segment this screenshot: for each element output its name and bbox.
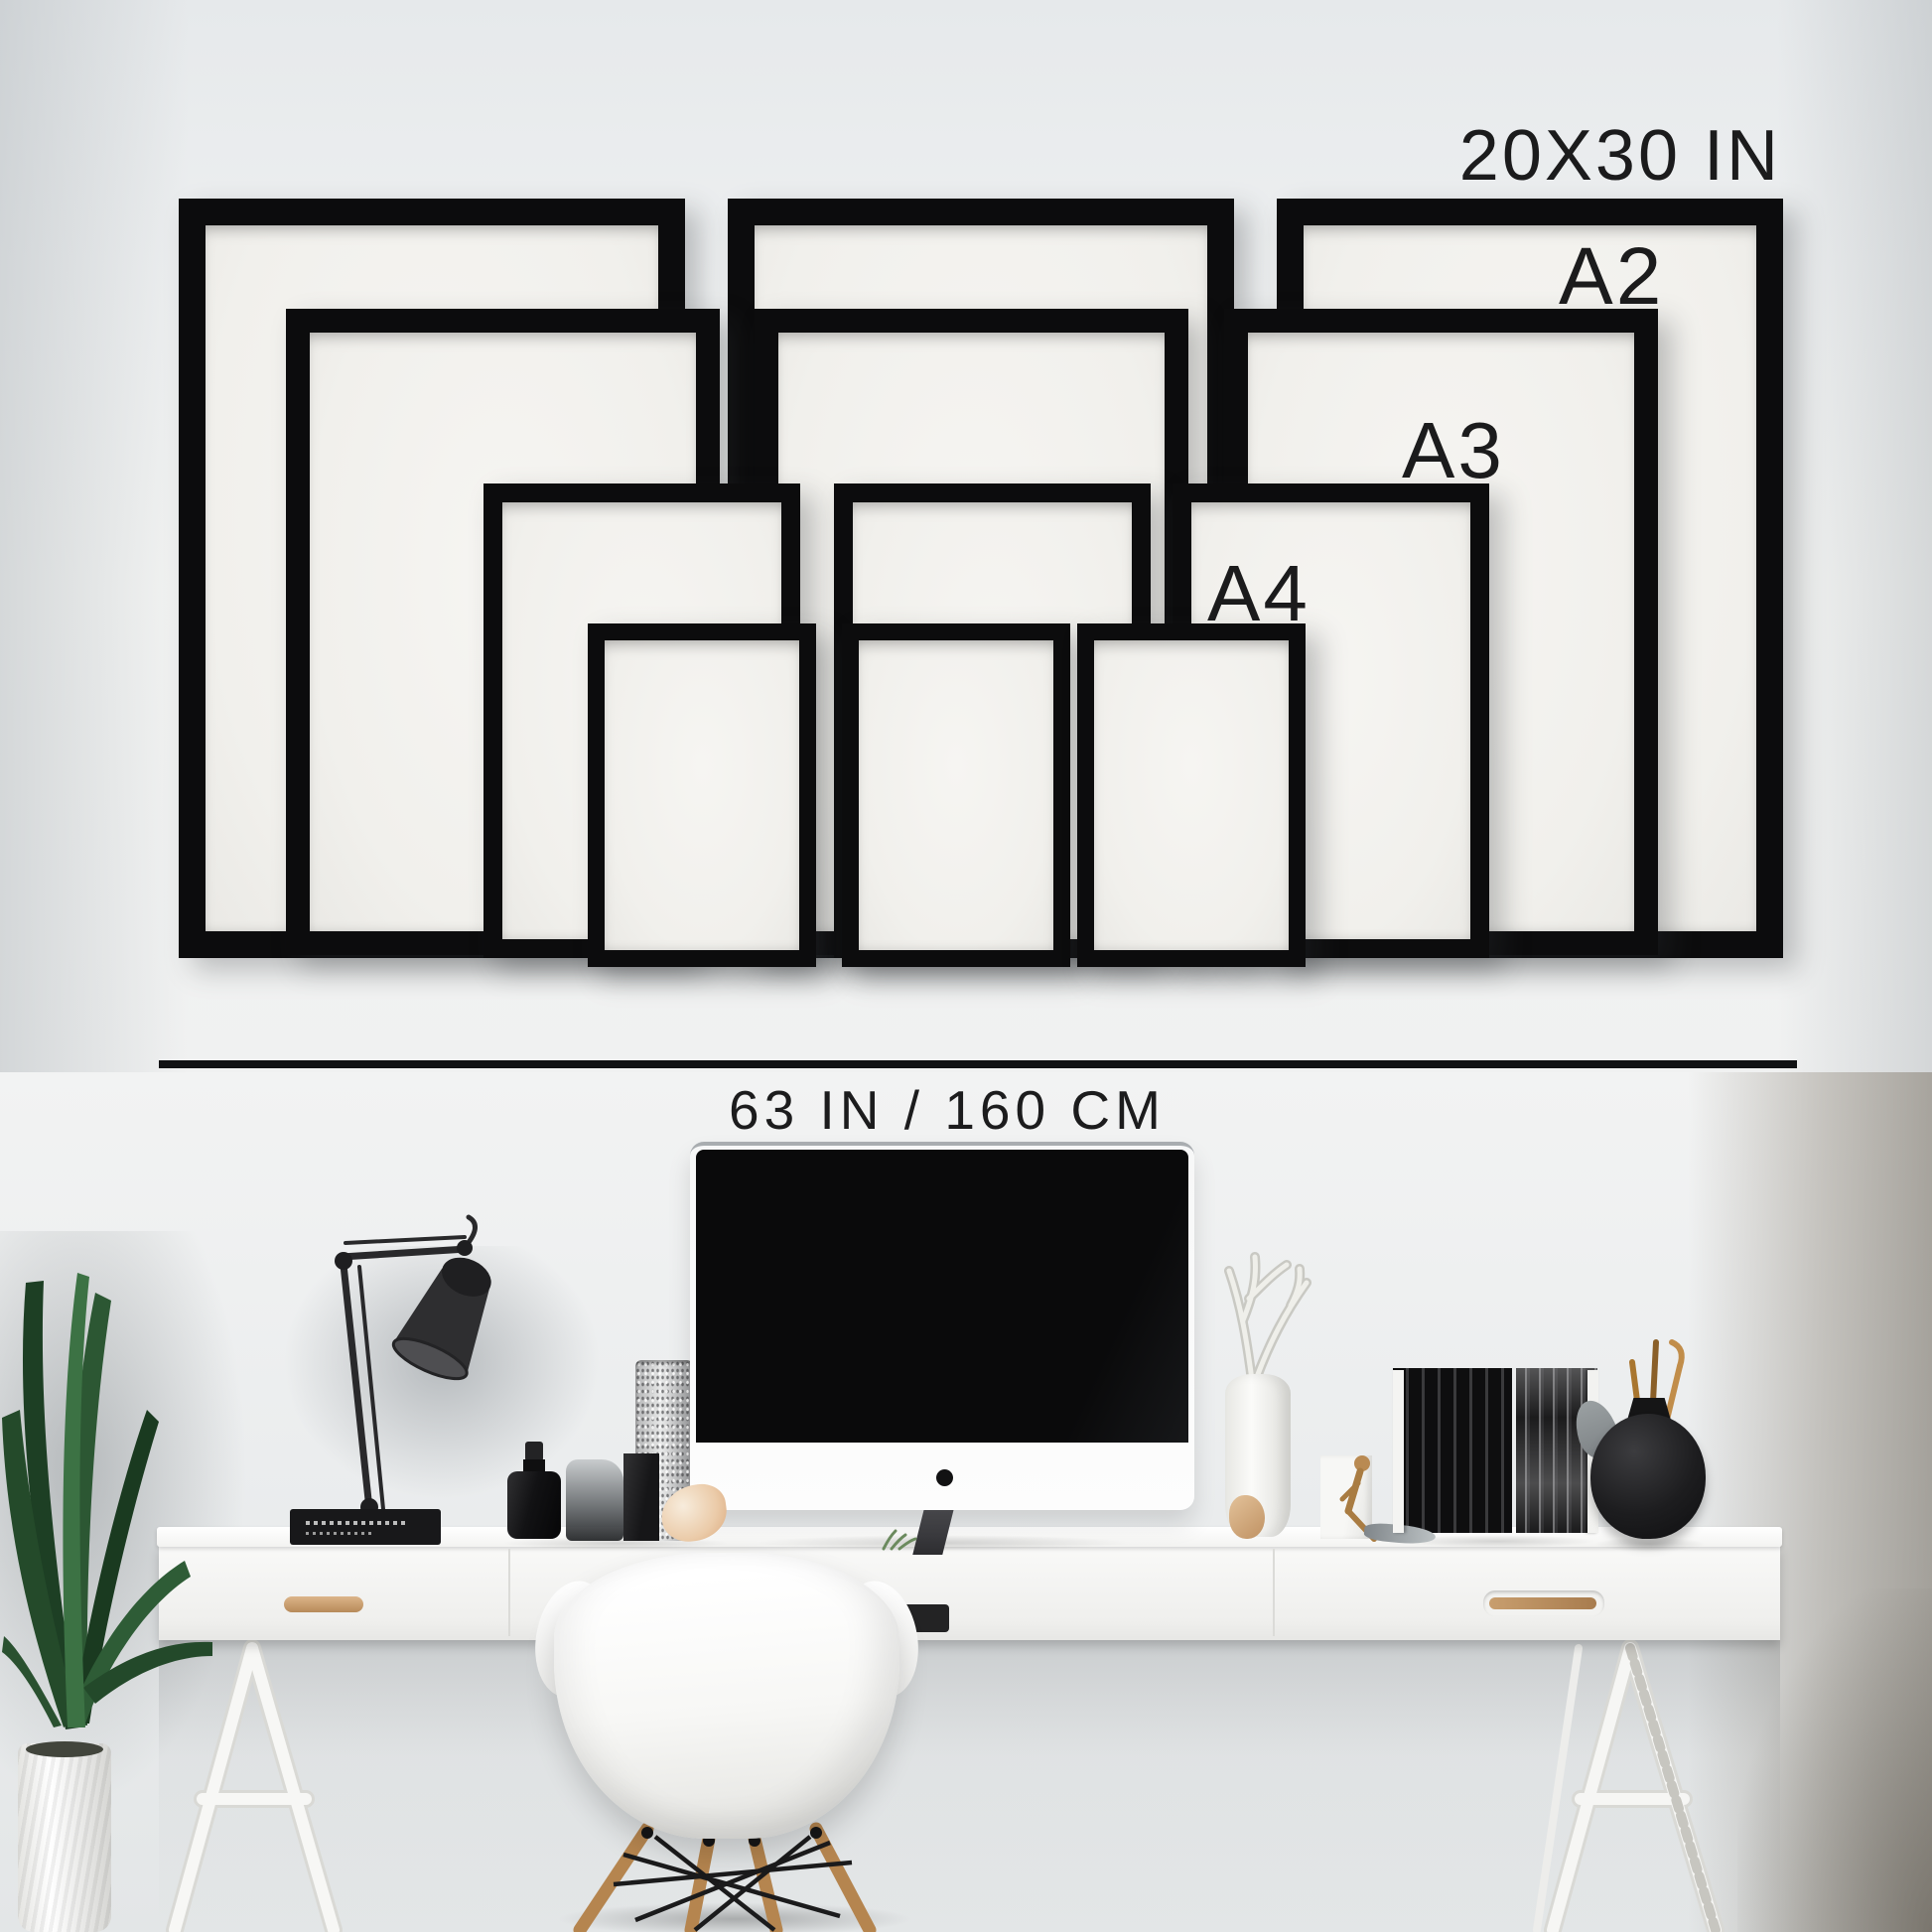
width-measure-line bbox=[159, 1060, 1797, 1068]
imac-screen bbox=[696, 1150, 1188, 1443]
label-size-a4: A4 bbox=[1207, 548, 1311, 639]
book-spine-text bbox=[306, 1521, 405, 1525]
flask-cap bbox=[525, 1442, 543, 1461]
lamp-base-books bbox=[290, 1509, 441, 1545]
lamp-wall-shadow bbox=[278, 1246, 606, 1504]
black-flask bbox=[507, 1471, 561, 1539]
frame-a4-right bbox=[1077, 623, 1306, 967]
apple-logo-icon bbox=[936, 1469, 953, 1486]
round-black-vase bbox=[1590, 1414, 1706, 1539]
bookend-left bbox=[1393, 1370, 1404, 1533]
drawer-handle-left bbox=[284, 1596, 363, 1612]
wall-right-shade bbox=[1777, 0, 1932, 1072]
room-scene: 20X30 IN A2 A3 A4 63 IN / 160 CM bbox=[0, 0, 1932, 1932]
vase-shadow bbox=[1594, 1537, 1706, 1552]
wall-left-shade bbox=[0, 0, 189, 1072]
wood-piece bbox=[1229, 1495, 1265, 1539]
drawer-seam-left bbox=[508, 1549, 510, 1636]
book-spine-text2 bbox=[306, 1532, 375, 1535]
frame-a4-left bbox=[588, 623, 816, 967]
pot-rim bbox=[26, 1741, 103, 1757]
black-book-row bbox=[1393, 1368, 1512, 1533]
width-measure-label: 63 IN / 160 CM bbox=[451, 1078, 1444, 1142]
frame-a4-middle bbox=[842, 623, 1070, 967]
glass-carafe bbox=[566, 1459, 623, 1541]
label-size-a3: A3 bbox=[1402, 405, 1505, 496]
chair-shadow bbox=[556, 1902, 913, 1932]
black-square-vase bbox=[623, 1453, 659, 1541]
label-size-a2: A2 bbox=[1559, 230, 1664, 324]
drawer-seam-right bbox=[1273, 1549, 1275, 1636]
drawer-handle-right-wood bbox=[1489, 1597, 1596, 1609]
label-size-20x30: 20X30 IN bbox=[1382, 115, 1781, 197]
under-desk-shadow bbox=[159, 1640, 1780, 1932]
white-plant-pot bbox=[18, 1743, 111, 1932]
